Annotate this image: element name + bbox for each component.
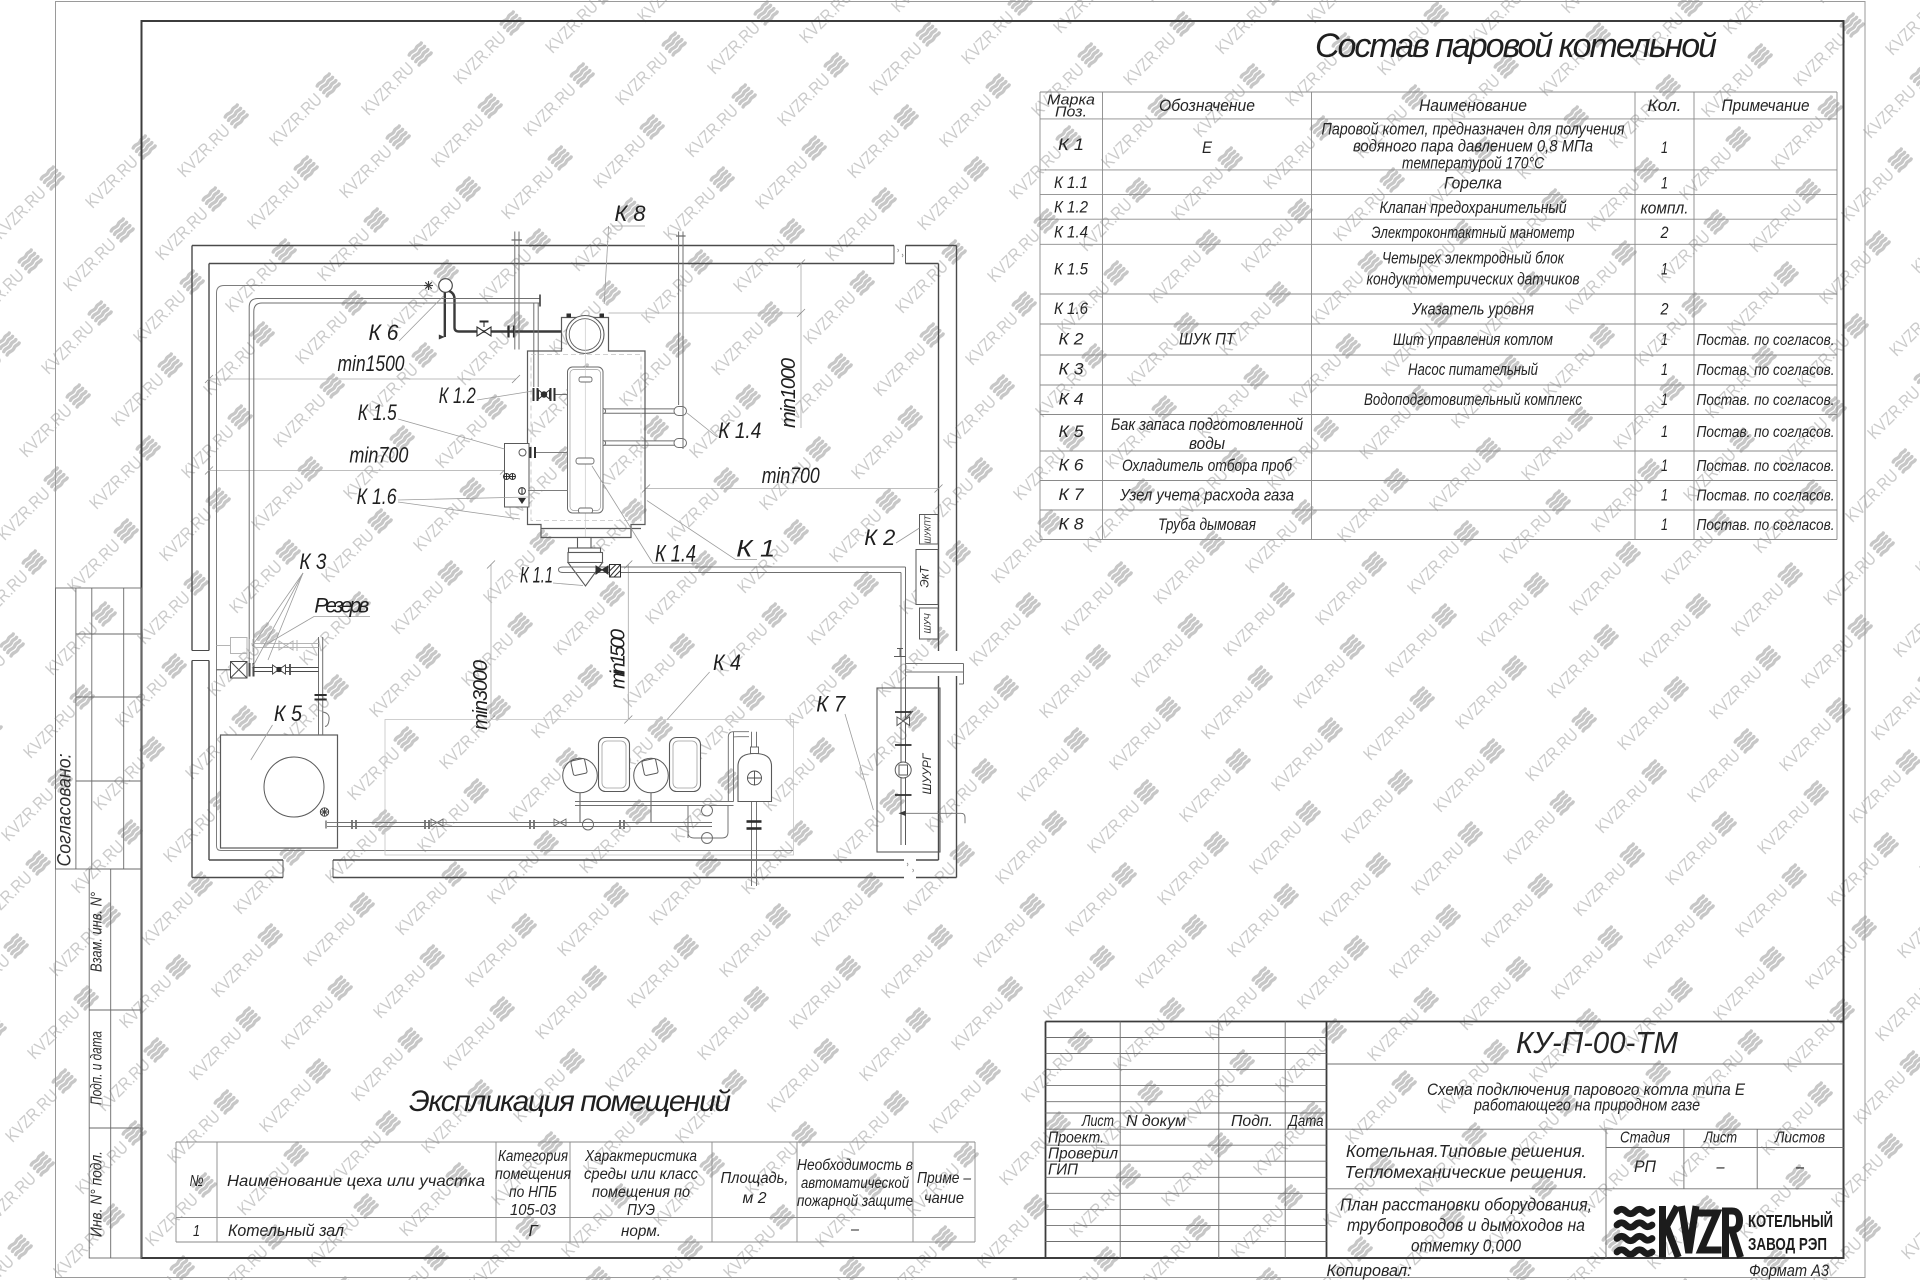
svg-text:К 5: К 5 [1059,422,1085,441]
svg-text:1: 1 [1661,486,1668,505]
svg-text:автоматической: автоматической [801,1175,909,1192]
svg-text:1: 1 [193,1223,200,1240]
svg-text:К 2: К 2 [864,525,895,550]
svg-text:1: 1 [1661,515,1668,534]
svg-text:Характеристика: Характеристика [584,1148,697,1165]
svg-text:Подп. и дата: Подп. и дата [89,1031,106,1105]
svg-text:1: 1 [1661,456,1668,475]
svg-text:Г: Г [529,1223,539,1240]
svg-text:Постав. по согласов.: Постав. по согласов. [1697,362,1835,379]
svg-text:Примечание: Примечание [1722,96,1810,115]
svg-text:Необходимость в: Необходимость в [797,1157,913,1174]
svg-text:чание: чание [924,1190,964,1207]
svg-text:Проверил: Проверил [1048,1146,1118,1163]
svg-text:Постав. по согласов.: Постав. по согласов. [1697,458,1835,475]
svg-text:Резерв: Резерв [314,595,369,618]
svg-text:N докум: N докум [1126,1113,1186,1130]
svg-text:min1500: min1500 [608,629,630,689]
svg-text:Узел учета расхода газа: Узел учета расхода газа [1119,486,1294,505]
svg-text:Проект.: Проект. [1048,1130,1104,1147]
svg-text:Наименование цеха или участка: Наименование цеха или участка [227,1173,485,1190]
svg-text:1: 1 [1661,390,1668,409]
svg-text:Тепломеханические решения.: Тепломеханические решения. [1345,1162,1588,1182]
svg-text:Постав. по согласов.: Постав. по согласов. [1697,517,1835,534]
svg-text:К 8: К 8 [1059,515,1085,534]
svg-text:1: 1 [1661,138,1668,157]
svg-text:min700: min700 [349,443,409,468]
svg-text:Поз.: Поз. [1055,104,1087,121]
svg-text:среды или класс: среды или класс [584,1166,698,1183]
svg-text:К 1.4: К 1.4 [1054,223,1088,242]
svg-text:Формат А3: Формат А3 [1749,1261,1829,1280]
svg-text:ЭкТ: ЭкТ [918,565,932,588]
svg-text:Шит управления котлом: Шит управления котлом [1393,330,1553,349]
svg-text:Обозначение: Обозначение [1159,96,1255,115]
svg-text:К 4: К 4 [1059,390,1084,409]
svg-text:Котельная.Типовые решения.: Котельная.Типовые решения. [1346,1141,1586,1161]
svg-text:м 2: м 2 [743,1190,767,1207]
svg-text:РП: РП [1634,1157,1657,1176]
svg-text:Площадь,: Площадь, [721,1170,789,1187]
svg-text:К 2: К 2 [1059,330,1085,349]
svg-text:Водоподготовительный комплекс: Водоподготовительный комплекс [1364,391,1583,409]
svg-text:помещения: помещения [495,1166,571,1183]
svg-text:ПУЭ: ПУЭ [627,1202,655,1219]
svg-text:Клапан предохранительный: Клапан предохранительный [1380,198,1567,217]
svg-text:Лист: Лист [1081,1113,1114,1130]
svg-text:Лист: Лист [1703,1130,1737,1147]
svg-text:1: 1 [1661,360,1668,379]
svg-text:Котельный зал: Котельный зал [228,1222,344,1240]
svg-text:К 1: К 1 [736,536,775,563]
svg-text:отметку 0,000: отметку 0,000 [1411,1236,1521,1256]
svg-text:Насос питательный: Насос питательный [1408,360,1538,379]
svg-text:температурой 170°С: температурой 170°С [1402,154,1545,173]
svg-text:К 1: К 1 [1058,135,1084,154]
svg-text:1: 1 [1661,330,1668,349]
svg-text:Стадия: Стадия [1620,1130,1670,1147]
svg-text:Согласовано:: Согласовано: [54,754,76,867]
svg-text:ШУК ПТ: ШУК ПТ [1179,330,1236,349]
svg-text:2: 2 [1660,223,1669,242]
svg-text:по НПБ: по НПБ [509,1184,557,1201]
svg-text:min1500: min1500 [338,351,406,376]
svg-text:К 1.6: К 1.6 [1054,299,1088,318]
svg-text:Взам. инв. N°: Взам. инв. N° [89,892,106,972]
svg-text:min3000: min3000 [470,660,492,730]
svg-text:Электроконтактный манометр: Электроконтактный манометр [1372,223,1575,242]
svg-text:К 1.1: К 1.1 [520,563,553,588]
svg-text:Дата: Дата [1287,1113,1324,1130]
svg-text:воды: воды [1189,434,1225,453]
svg-text:ШУУРГ: ШУУРГ [920,752,934,794]
svg-text:К 6: К 6 [1059,456,1085,475]
svg-text:План расстановки оборудования,: План расстановки оборудования, [1340,1195,1592,1215]
svg-text:Постав. по согласов.: Постав. по согласов. [1697,332,1835,349]
svg-text:Состав паровой котельной: Состав паровой котельной [1315,27,1717,65]
svg-text:К 6: К 6 [369,320,400,345]
svg-text:Копировал:: Копировал: [1327,1261,1412,1280]
svg-text:ШУКПТ: ШУКПТ [924,514,933,543]
svg-text:К 1.1: К 1.1 [1054,173,1088,192]
svg-text:К 7: К 7 [1059,485,1085,504]
svg-text:Постав. по согласов.: Постав. по согласов. [1697,424,1835,441]
svg-text:ЗАВОД РЭП: ЗАВОД РЭП [1748,1234,1827,1254]
svg-text:–: – [1795,1157,1804,1176]
svg-text:помещения по: помещения по [592,1184,690,1201]
svg-text:Экспликация помещений: Экспликация помещений [409,1085,731,1118]
svg-text:Е: Е [1202,138,1213,157]
svg-text:К 8: К 8 [615,201,647,226]
svg-text:К 5: К 5 [274,701,303,726]
svg-text:Бак запаса подготовленной: Бак запаса подготовленной [1111,415,1303,434]
svg-text:Листов: Листов [1774,1130,1825,1147]
svg-text:компл.: компл. [1641,199,1689,218]
svg-text:К 1.4: К 1.4 [655,541,696,568]
svg-text:работающего на природном газе: работающего на природном газе [1473,1097,1700,1115]
svg-text:Постав. по согласов.: Постав. по согласов. [1697,392,1835,409]
svg-text:К 1.5: К 1.5 [358,400,398,425]
svg-text:–: – [1716,1157,1725,1176]
svg-text:ГИП: ГИП [1048,1162,1078,1179]
svg-text:пожарной защите: пожарной защите [797,1193,913,1210]
svg-text:2: 2 [1660,300,1669,319]
svg-text:Труба дымовая: Труба дымовая [1158,515,1256,534]
svg-text:кондуктометрических датчиков: кондуктометрических датчиков [1367,270,1580,289]
svg-text:min700: min700 [762,463,821,488]
svg-text:Инв. N° подл.: Инв. N° подл. [89,1151,106,1237]
svg-text:Четырех электродный блок: Четырех электродный блок [1382,249,1565,268]
svg-text:К 1.2: К 1.2 [1054,198,1088,217]
svg-text:Указатель уровня: Указатель уровня [1411,300,1534,319]
svg-text:К 1.2: К 1.2 [439,383,476,408]
svg-text:ШУЧ: ШУЧ [923,613,933,634]
svg-text:Охладитель отбора проб: Охладитель отбора проб [1122,456,1293,475]
svg-text:Категория: Категория [498,1148,568,1165]
svg-text:1: 1 [1661,422,1668,441]
svg-text:№: № [190,1173,204,1190]
svg-text:трубопроводов и дымоходов на: трубопроводов и дымоходов на [1347,1215,1585,1235]
svg-text:1: 1 [1661,174,1668,193]
svg-text:Постав. по согласов.: Постав. по согласов. [1697,488,1835,505]
svg-text:–: – [850,1221,859,1238]
svg-text:105-03: 105-03 [510,1202,556,1219]
svg-text:К 1.6: К 1.6 [357,484,398,509]
svg-text:КОТЕЛЬНЫЙ: КОТЕЛЬНЫЙ [1748,1210,1833,1231]
svg-text:К 4: К 4 [713,650,741,675]
svg-text:КУ-П-00-ТМ: КУ-П-00-ТМ [1516,1026,1679,1060]
svg-text:Подп.: Подп. [1231,1113,1273,1130]
svg-text:К 3: К 3 [299,549,327,574]
svg-text:Приме –: Приме – [917,1170,971,1187]
svg-text:норм.: норм. [621,1223,661,1240]
svg-text:Кол.: Кол. [1648,96,1682,115]
svg-text:1: 1 [1661,260,1668,279]
svg-text:Наименование: Наименование [1419,96,1527,115]
svg-text:min1000: min1000 [778,358,800,428]
svg-text:К 7: К 7 [816,692,846,717]
svg-text:К 3: К 3 [1059,360,1085,379]
svg-text:К 1.4: К 1.4 [718,418,761,443]
svg-text:К 1.5: К 1.5 [1054,260,1088,279]
svg-text:Горелка: Горелка [1444,174,1502,193]
